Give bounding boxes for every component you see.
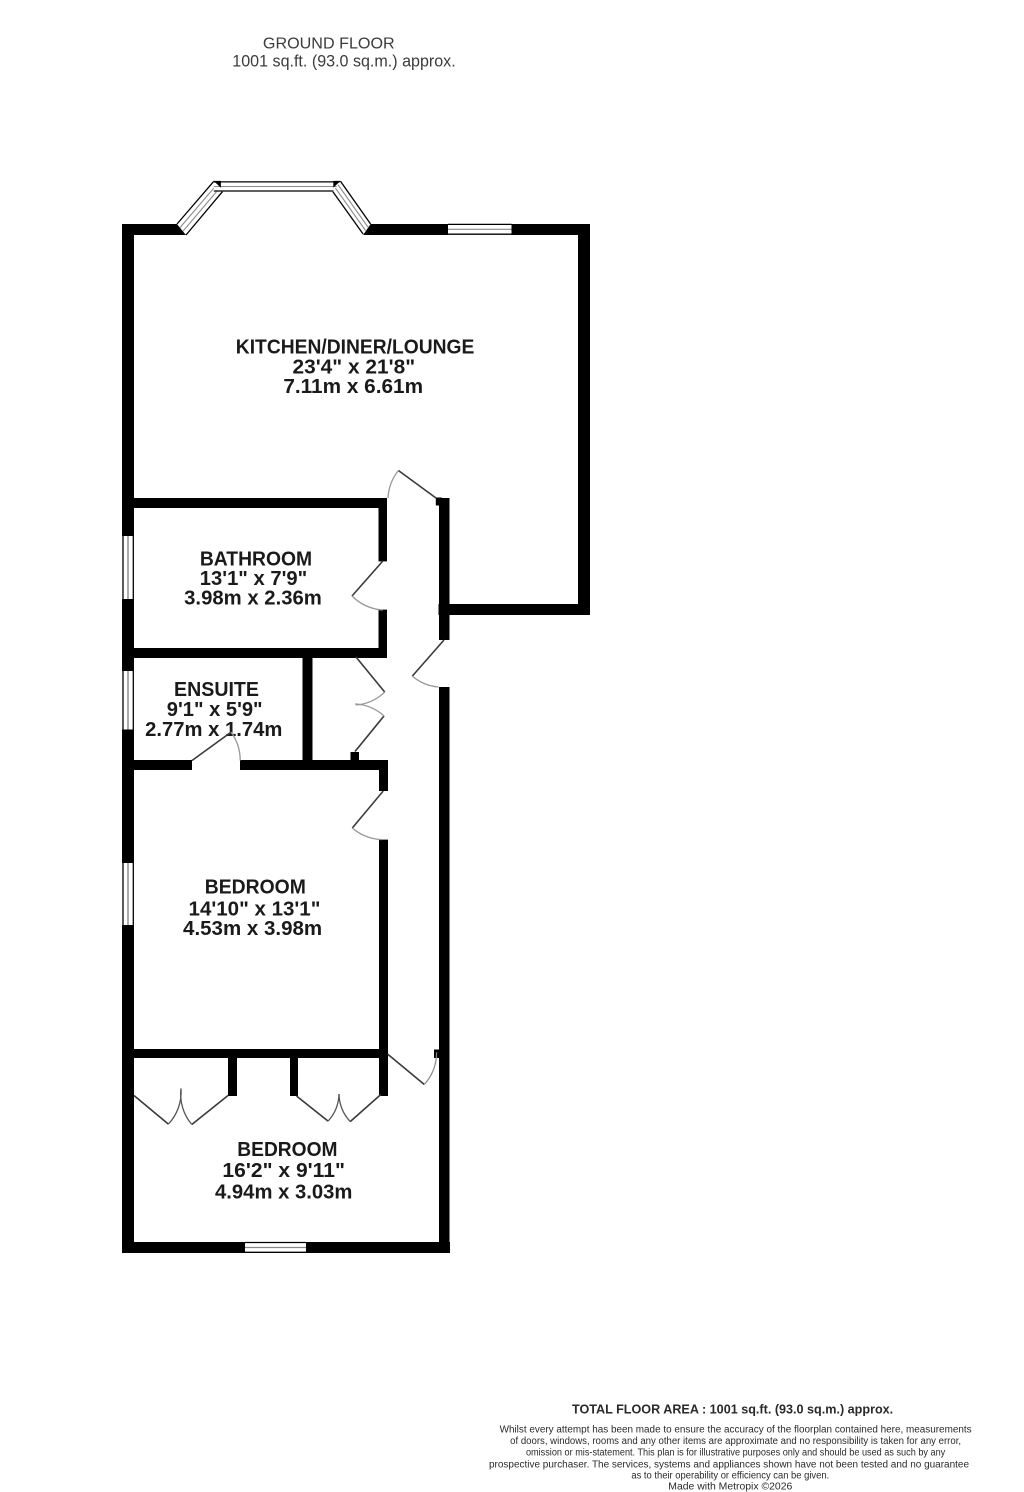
svg-text:7.11m x 6.61m: 7.11m x 6.61m [283,376,423,398]
svg-text:BEDROOM: BEDROOM [205,877,306,899]
svg-text:Whilst every attempt has been: Whilst every attempt has been made to en… [500,1424,972,1435]
svg-text:TOTAL FLOOR AREA : 1001 sq.ft.: TOTAL FLOOR AREA : 1001 sq.ft. (93.0 sq.… [572,1403,893,1417]
svg-text:9'1" x 5'9": 9'1" x 5'9" [167,699,263,721]
svg-text:ENSUITE: ENSUITE [174,679,259,701]
svg-text:omission or mis-statement. Thi: omission or mis-statement. This plan is … [526,1448,945,1459]
svg-text:23'4" x 21'8": 23'4" x 21'8" [293,356,416,378]
svg-text:1001 sq.ft. (93.0 sq.m.) appro: 1001 sq.ft. (93.0 sq.m.) approx. [232,53,455,71]
svg-text:prospective purchaser. The ser: prospective purchaser. The services, sys… [489,1460,969,1471]
svg-text:GROUND FLOOR: GROUND FLOOR [263,36,395,53]
svg-text:16'2" x 9'11": 16'2" x 9'11" [222,1160,345,1182]
svg-text:2.77m x 1.74m: 2.77m x 1.74m [145,719,282,741]
svg-text:Made with Metropix ©2026: Made with Metropix ©2026 [668,1482,792,1492]
svg-text:4.53m x 3.98m: 4.53m x 3.98m [183,918,322,940]
svg-text:4.94m x 3.03m: 4.94m x 3.03m [215,1182,352,1204]
svg-text:KITCHEN/DINER/LOUNGE: KITCHEN/DINER/LOUNGE [236,337,475,359]
svg-text:as to their operability or eff: as to their operability or efficiency ca… [631,1470,829,1481]
svg-text:of doors, windows, rooms and a: of doors, windows, rooms and any other i… [510,1436,961,1447]
svg-text:14'10" x 13'1": 14'10" x 13'1" [189,898,321,920]
svg-text:BEDROOM: BEDROOM [237,1139,337,1161]
svg-text:3.98m x 2.36m: 3.98m x 2.36m [184,587,322,609]
